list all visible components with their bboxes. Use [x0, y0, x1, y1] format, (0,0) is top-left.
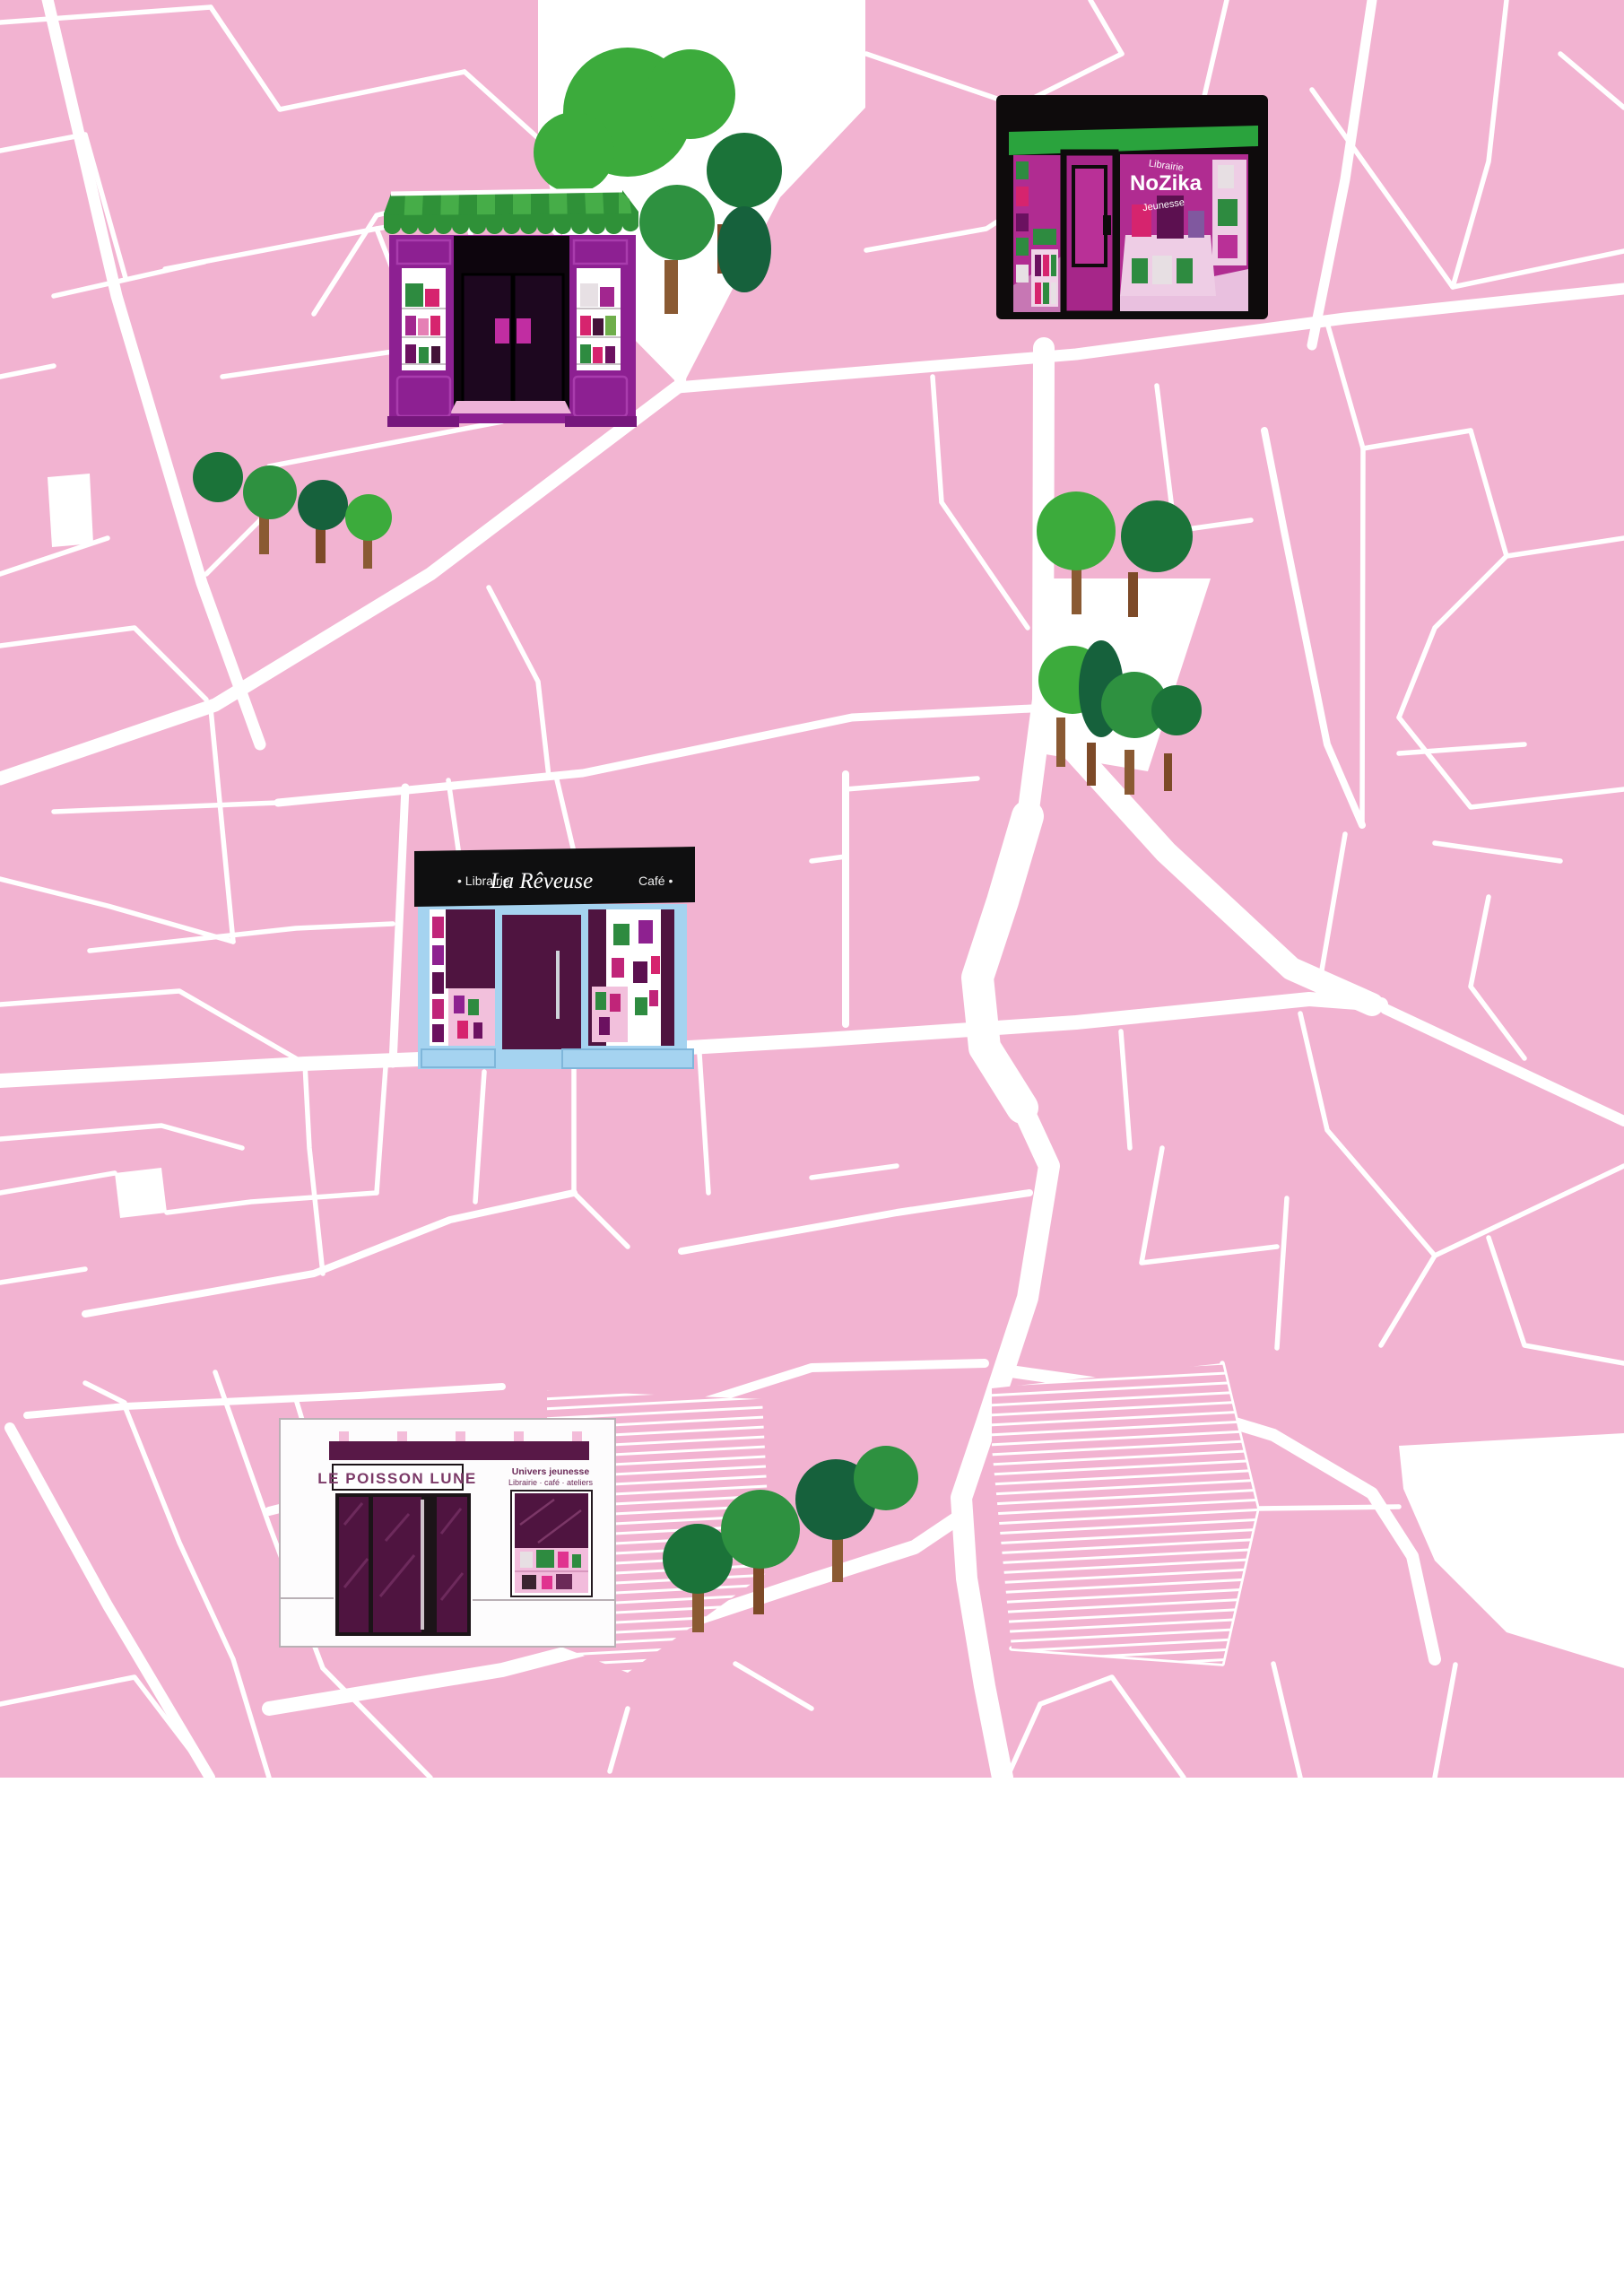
svg-text:NoZika: NoZika: [1130, 171, 1203, 196]
svg-text:Café •: Café •: [638, 874, 673, 888]
svg-text:La Rêveuse: La Rêveuse: [490, 869, 594, 893]
svg-text:Librairie · café · ateliers: Librairie · café · ateliers: [508, 1478, 594, 1487]
svg-text:LE POISSON LUNE: LE POISSON LUNE: [317, 1470, 476, 1487]
svg-text:Univers jeunesse: Univers jeunesse: [512, 1466, 590, 1477]
